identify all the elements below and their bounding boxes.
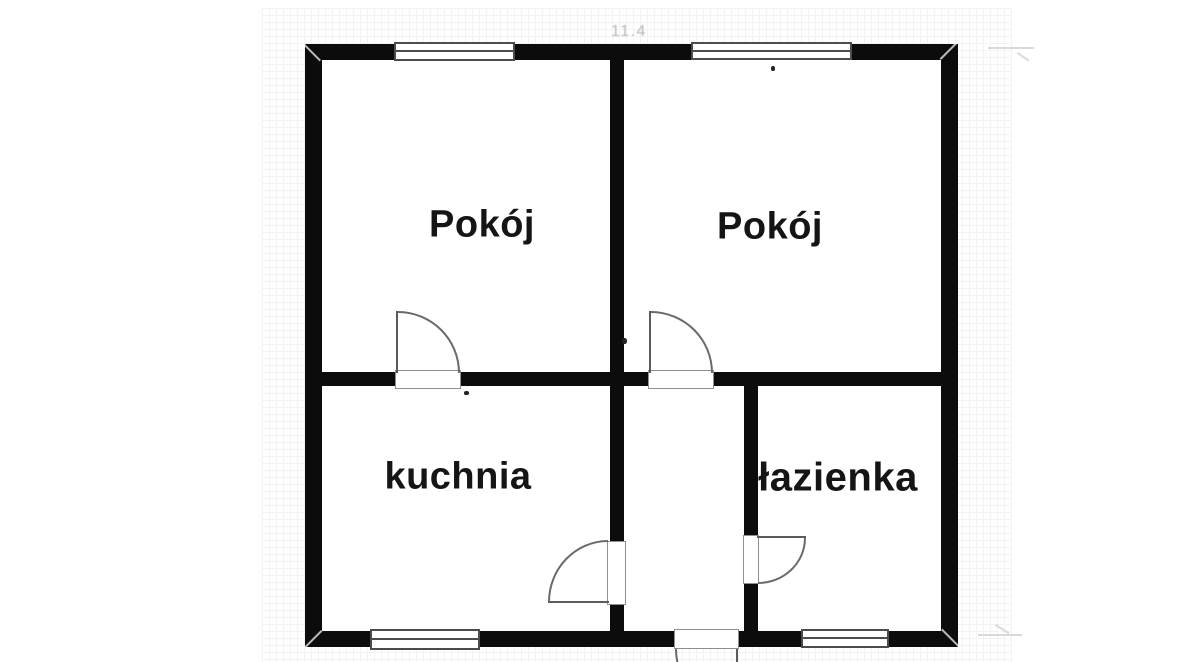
- door-opening-kitchen: [607, 541, 626, 605]
- noise-speck: [464, 391, 469, 395]
- wall-right: [941, 44, 958, 647]
- wall-left: [305, 44, 322, 647]
- window-pane-line: [803, 637, 887, 639]
- window-symbol-top-right: [691, 42, 852, 60]
- floor-plan-canvas: 11.4 Pokój Pokój kuchnia: [0, 0, 1177, 662]
- window-pane-line: [693, 50, 850, 52]
- scan-artifact-bottom-right: [978, 634, 1022, 636]
- window-symbol-bathroom-bottom: [801, 629, 889, 648]
- window-pane-line: [396, 50, 513, 52]
- room-label-pokoj-right: Pokój: [717, 206, 823, 249]
- noise-speck: [622, 338, 627, 344]
- door-opening-bathroom: [743, 535, 759, 584]
- noise-speck: [771, 66, 775, 71]
- room-label-kuchnia: kuchnia: [384, 456, 531, 499]
- door-opening-entrance: [674, 629, 739, 649]
- window-pane-line: [372, 638, 478, 640]
- scan-artifact-top-right: [988, 47, 1034, 49]
- door-arc-icon-entrance: [675, 649, 738, 662]
- wall-corridor-right: [744, 384, 758, 631]
- window-symbol-top-left: [394, 42, 515, 61]
- dimension-annotation: 11.4: [611, 23, 647, 41]
- room-label-lazienka: łazienka: [758, 456, 918, 501]
- window-symbol-kitchen-bottom: [370, 629, 480, 650]
- room-label-pokoj-left: Pokój: [429, 204, 535, 247]
- scan-artifact-top-right-tick: [1017, 52, 1030, 62]
